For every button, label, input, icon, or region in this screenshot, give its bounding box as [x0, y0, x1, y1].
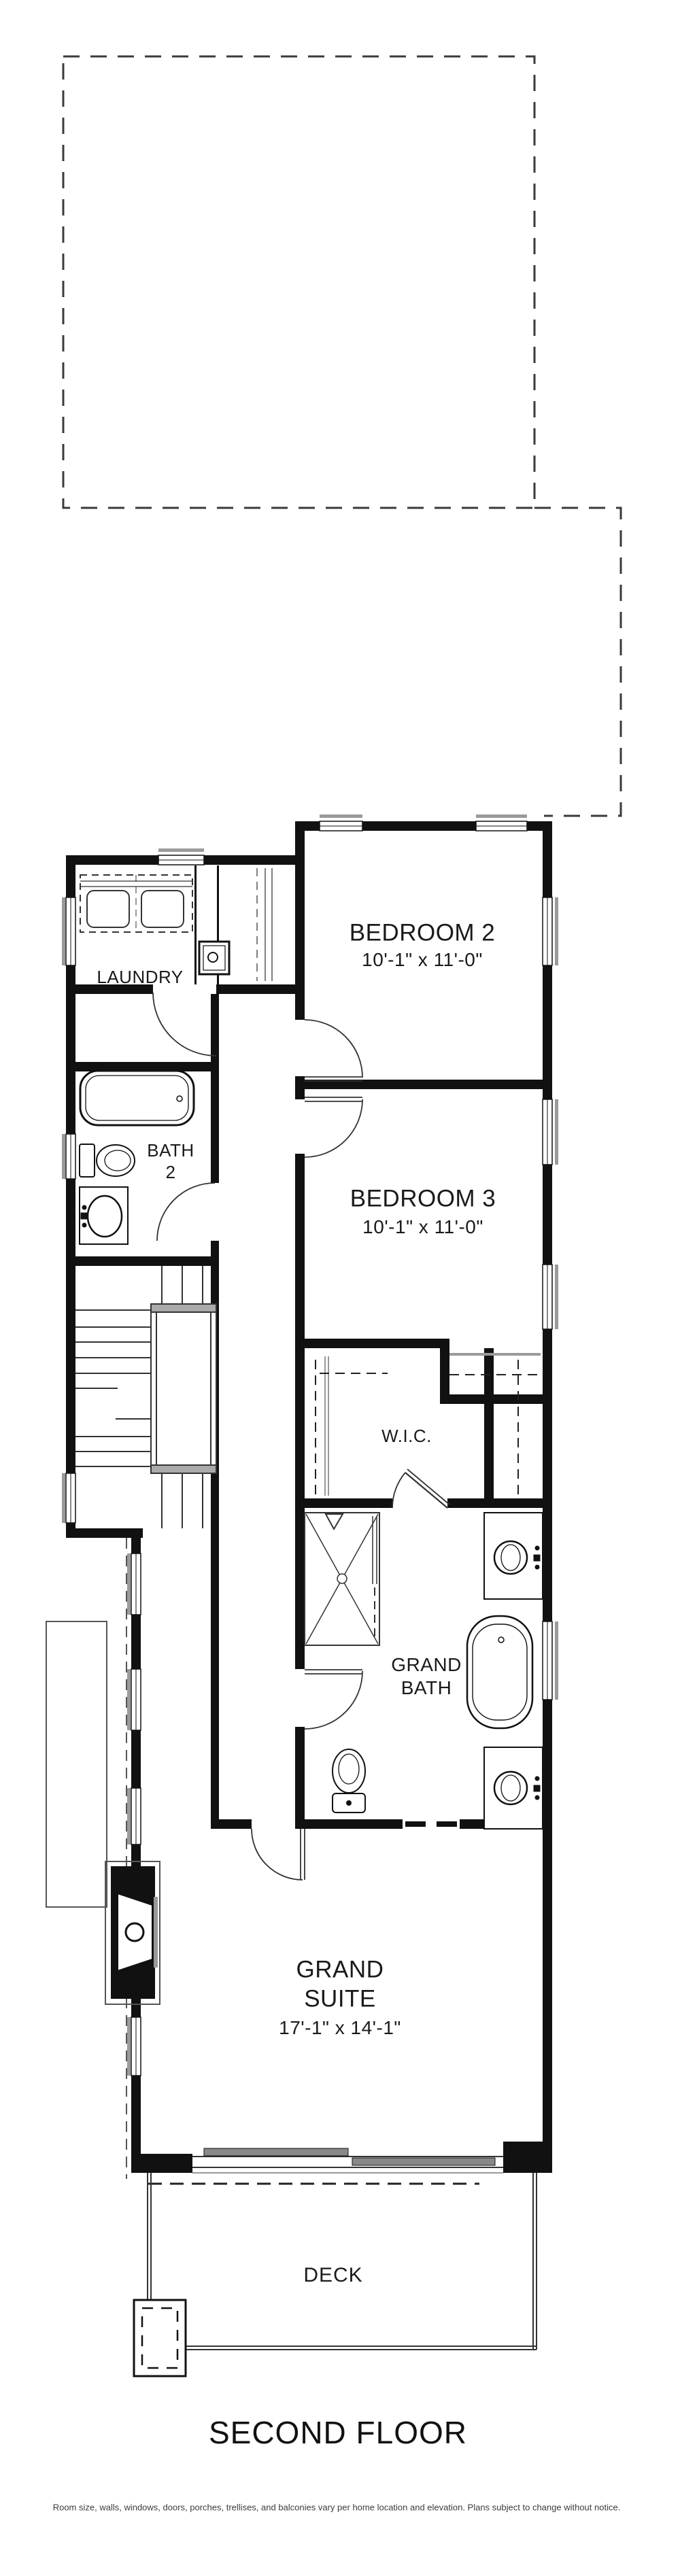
shower [305, 1513, 379, 1645]
room-label-grand-suite-line1: GRAND [296, 1958, 384, 1982]
disclaimer-text: Room size, walls, windows, doors, porche… [53, 2503, 621, 2513]
room-label-bath2-line2: 2 [166, 1163, 176, 1181]
room-dims-grand-suite: 17'-1" x 14'-1" [279, 2019, 401, 2038]
toilet-grand-bath [333, 1749, 365, 1813]
bedroom3-door-arc [305, 1099, 362, 1157]
roof-outline-dashed [63, 56, 621, 816]
hall-closet-lines [257, 868, 272, 981]
laundry-door-arc [153, 993, 216, 1056]
grand-suite-door-arc [252, 1829, 303, 1880]
sliding-door [192, 2148, 503, 2173]
bath2-door-arc [157, 1183, 215, 1241]
room-label-laundry: LAUNDRY [97, 968, 183, 986]
closet-rods-shelves [316, 1354, 541, 1496]
room-label-grand-bath-line2: BATH [401, 1679, 452, 1698]
page-title: SECOND FLOOR [209, 2417, 467, 2448]
floor-plan-page: LAUNDRY BEDROOM 2 10'-1" x 11'-0" BEDROO… [0, 0, 680, 2576]
deck-outline [148, 2173, 537, 2350]
room-dims-bedroom2: 10'-1" x 11'-0" [362, 950, 483, 969]
room-dims-bedroom3: 10'-1" x 11'-0" [362, 1218, 483, 1237]
floor-plan-drawing [0, 0, 680, 2576]
laundry-sink [199, 942, 229, 974]
vanity-sink-top [484, 1513, 543, 1599]
wic-door-arc [392, 1473, 405, 1508]
room-label-bath2-line1: BATH [147, 1141, 194, 1159]
room-label-bedroom2: BEDROOM 2 [350, 921, 496, 945]
washer-dryer [80, 875, 192, 932]
freestanding-tub [467, 1616, 532, 1728]
vanity-sink-bath2 [80, 1187, 128, 1244]
bedroom2-door-arc [305, 1020, 362, 1078]
bathtub [80, 1071, 194, 1125]
fireplace [105, 1861, 160, 2004]
stairwell-railing [151, 1304, 216, 1473]
vanity-sink-bottom [484, 1747, 543, 1829]
toilet-bath2 [80, 1144, 135, 1177]
room-label-bedroom3: BEDROOM 3 [350, 1187, 496, 1211]
room-label-grand-bath-line1: GRAND [391, 1655, 462, 1675]
room-label-deck: DECK [303, 2265, 362, 2286]
grand-bath-door-arc [305, 1671, 362, 1729]
room-label-grand-suite-line2: SUITE [304, 1987, 376, 2011]
room-label-wic: W.I.C. [381, 1427, 432, 1445]
deck-post [134, 2300, 186, 2376]
